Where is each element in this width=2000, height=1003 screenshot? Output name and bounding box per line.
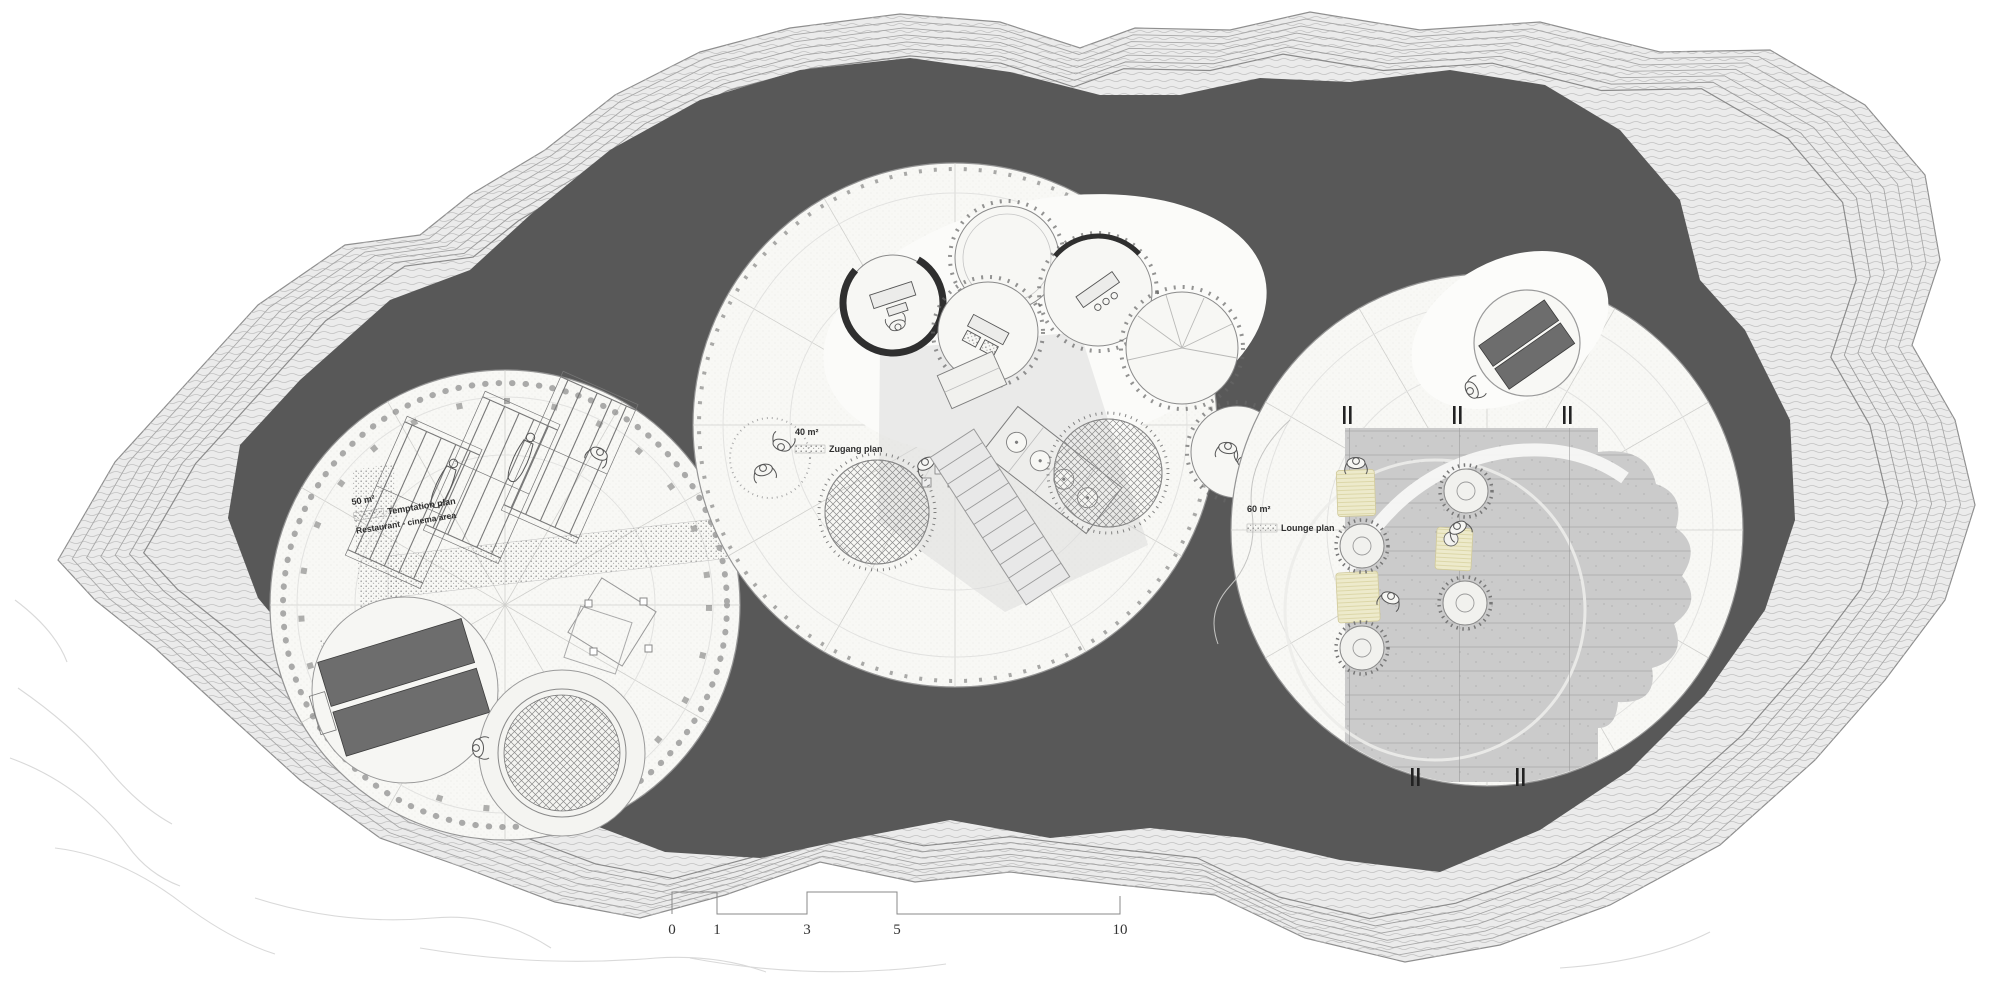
scale-tick: 1: [713, 922, 721, 938]
site-plan-drawing: 50 m² Temptation plan Restaurant - cinem…: [0, 0, 2000, 1003]
scale-tick: 3: [803, 922, 811, 938]
area-value: 40 m²: [795, 427, 819, 437]
legend-swatch: [795, 445, 825, 453]
plan-title: Zugang plan: [829, 444, 883, 454]
plan-title: Lounge plan: [1281, 523, 1335, 533]
area-value: 60 m²: [1247, 504, 1271, 514]
pool-left: [479, 670, 645, 836]
scale-bar: 0 1 3 5 10: [668, 892, 1127, 938]
scale-bar-line: [672, 892, 1120, 914]
scale-tick: 10: [1113, 922, 1128, 938]
legend-swatch: [1247, 524, 1277, 532]
site-plan-page: 50 m² Temptation plan Restaurant - cinem…: [0, 0, 2000, 1003]
scale-tick: 5: [893, 922, 901, 938]
scale-tick: 0: [668, 922, 676, 938]
